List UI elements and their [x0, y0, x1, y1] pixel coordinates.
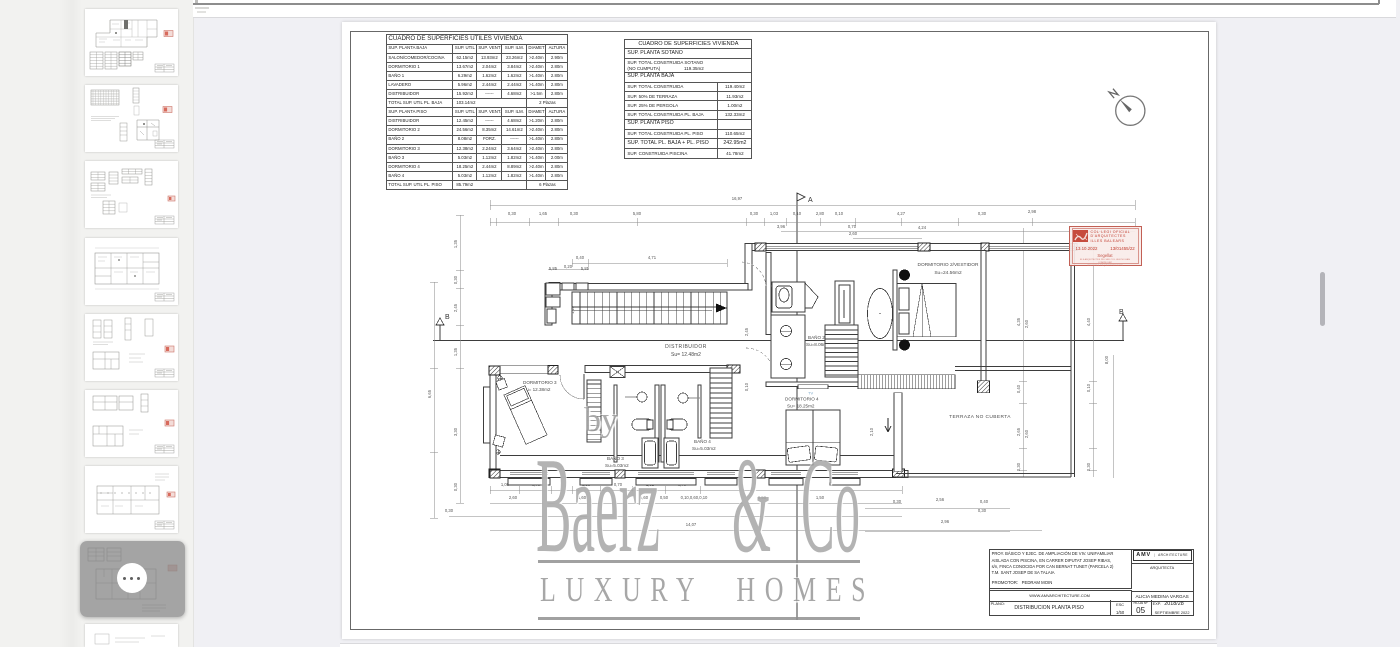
- svg-text:4,35: 4,35: [1016, 317, 1021, 326]
- svg-text:2,60: 2,60: [1024, 429, 1029, 438]
- svg-text:1,10: 1,10: [570, 305, 575, 314]
- svg-text:Su=24.56m2: Su=24.56m2: [934, 270, 962, 276]
- svg-text:2,56: 2,56: [936, 497, 945, 502]
- svg-text:4,27: 4,27: [897, 211, 906, 216]
- svg-text:0,30: 0,30: [1086, 462, 1091, 471]
- svg-text:2,60: 2,60: [509, 495, 518, 500]
- svg-text:2,98: 2,98: [1028, 209, 1037, 214]
- svg-text:0,30: 0,30: [978, 211, 987, 216]
- svg-text:B: B: [445, 314, 450, 321]
- svg-text:DORMITORIO 3: DORMITORIO 3: [523, 380, 557, 385]
- svg-text:0,10: 0,10: [793, 211, 802, 216]
- svg-text:3,30: 3,30: [453, 427, 458, 436]
- svg-text:0,70: 0,70: [848, 224, 857, 229]
- svg-text:2,96: 2,96: [941, 519, 950, 524]
- svg-text:0,30: 0,30: [445, 508, 454, 513]
- svg-text:Su= 12.48m2: Su= 12.48m2: [671, 352, 701, 358]
- svg-text:0,30: 0,30: [1016, 462, 1021, 471]
- svg-text:TERRAZA NO CUBERTA: TERRAZA NO CUBERTA: [949, 414, 1011, 420]
- svg-text:4,71: 4,71: [648, 255, 657, 260]
- svg-text:5,85: 5,85: [549, 266, 558, 271]
- svg-text:5,85: 5,85: [581, 266, 590, 271]
- svg-text:16,97: 16,97: [732, 196, 743, 201]
- svg-text:0,40: 0,40: [576, 255, 585, 260]
- svg-text:2,80: 2,80: [816, 211, 825, 216]
- svg-text:4,24: 4,24: [918, 225, 927, 230]
- svg-text:0,40: 0,40: [980, 499, 989, 504]
- svg-text:0,40: 0,40: [1016, 384, 1021, 393]
- svg-text:2,45: 2,45: [744, 327, 749, 336]
- svg-text:0,30: 0,30: [453, 482, 458, 491]
- svg-text:3,96: 3,96: [777, 224, 786, 229]
- svg-text:1,03: 1,03: [770, 211, 779, 216]
- svg-text:2,65: 2,65: [1016, 427, 1021, 436]
- svg-text:0,30: 0,30: [750, 211, 759, 216]
- svg-text:1,35: 1,35: [453, 347, 458, 356]
- svg-text:TV: TV: [808, 391, 813, 396]
- svg-text:2,45: 2,45: [453, 303, 458, 312]
- svg-text:0,30: 0,30: [893, 499, 902, 504]
- svg-text:2,60: 2,60: [849, 231, 858, 236]
- svg-text:0,10: 0,10: [835, 211, 844, 216]
- svg-text:DISTRIBUIDOR: DISTRIBUIDOR: [665, 344, 707, 350]
- svg-text:2,10: 2,10: [869, 427, 874, 436]
- svg-text:0,30: 0,30: [453, 275, 458, 284]
- svg-text:1,65: 1,65: [539, 211, 548, 216]
- svg-text:0,10: 0,10: [1086, 383, 1091, 392]
- svg-text:5,80: 5,80: [633, 211, 642, 216]
- svg-text:Su= 18.25m2: Su= 18.25m2: [787, 404, 815, 409]
- svg-text:0,30: 0,30: [978, 508, 987, 513]
- svg-text:8,00: 8,00: [1104, 355, 1109, 364]
- svg-text:1,35: 1,35: [453, 239, 458, 248]
- svg-text:2,60: 2,60: [1024, 319, 1029, 328]
- svg-text:A: A: [808, 197, 813, 204]
- svg-text:BAÑO 2: BAÑO 2: [808, 334, 825, 340]
- svg-text:0,30: 0,30: [508, 211, 517, 216]
- svg-text:0,30: 0,30: [570, 211, 579, 216]
- svg-text:0,10: 0,10: [744, 382, 749, 391]
- svg-text:6,65: 6,65: [427, 389, 432, 398]
- svg-text:4,40: 4,40: [1086, 317, 1091, 326]
- svg-text:DORMITORIO 2/VESTIDOR: DORMITORIO 2/VESTIDOR: [918, 262, 979, 268]
- svg-text:B: B: [1119, 309, 1124, 316]
- svg-text:0,20: 0,20: [564, 264, 573, 269]
- svg-text:DORMITORIO 4: DORMITORIO 4: [785, 397, 819, 402]
